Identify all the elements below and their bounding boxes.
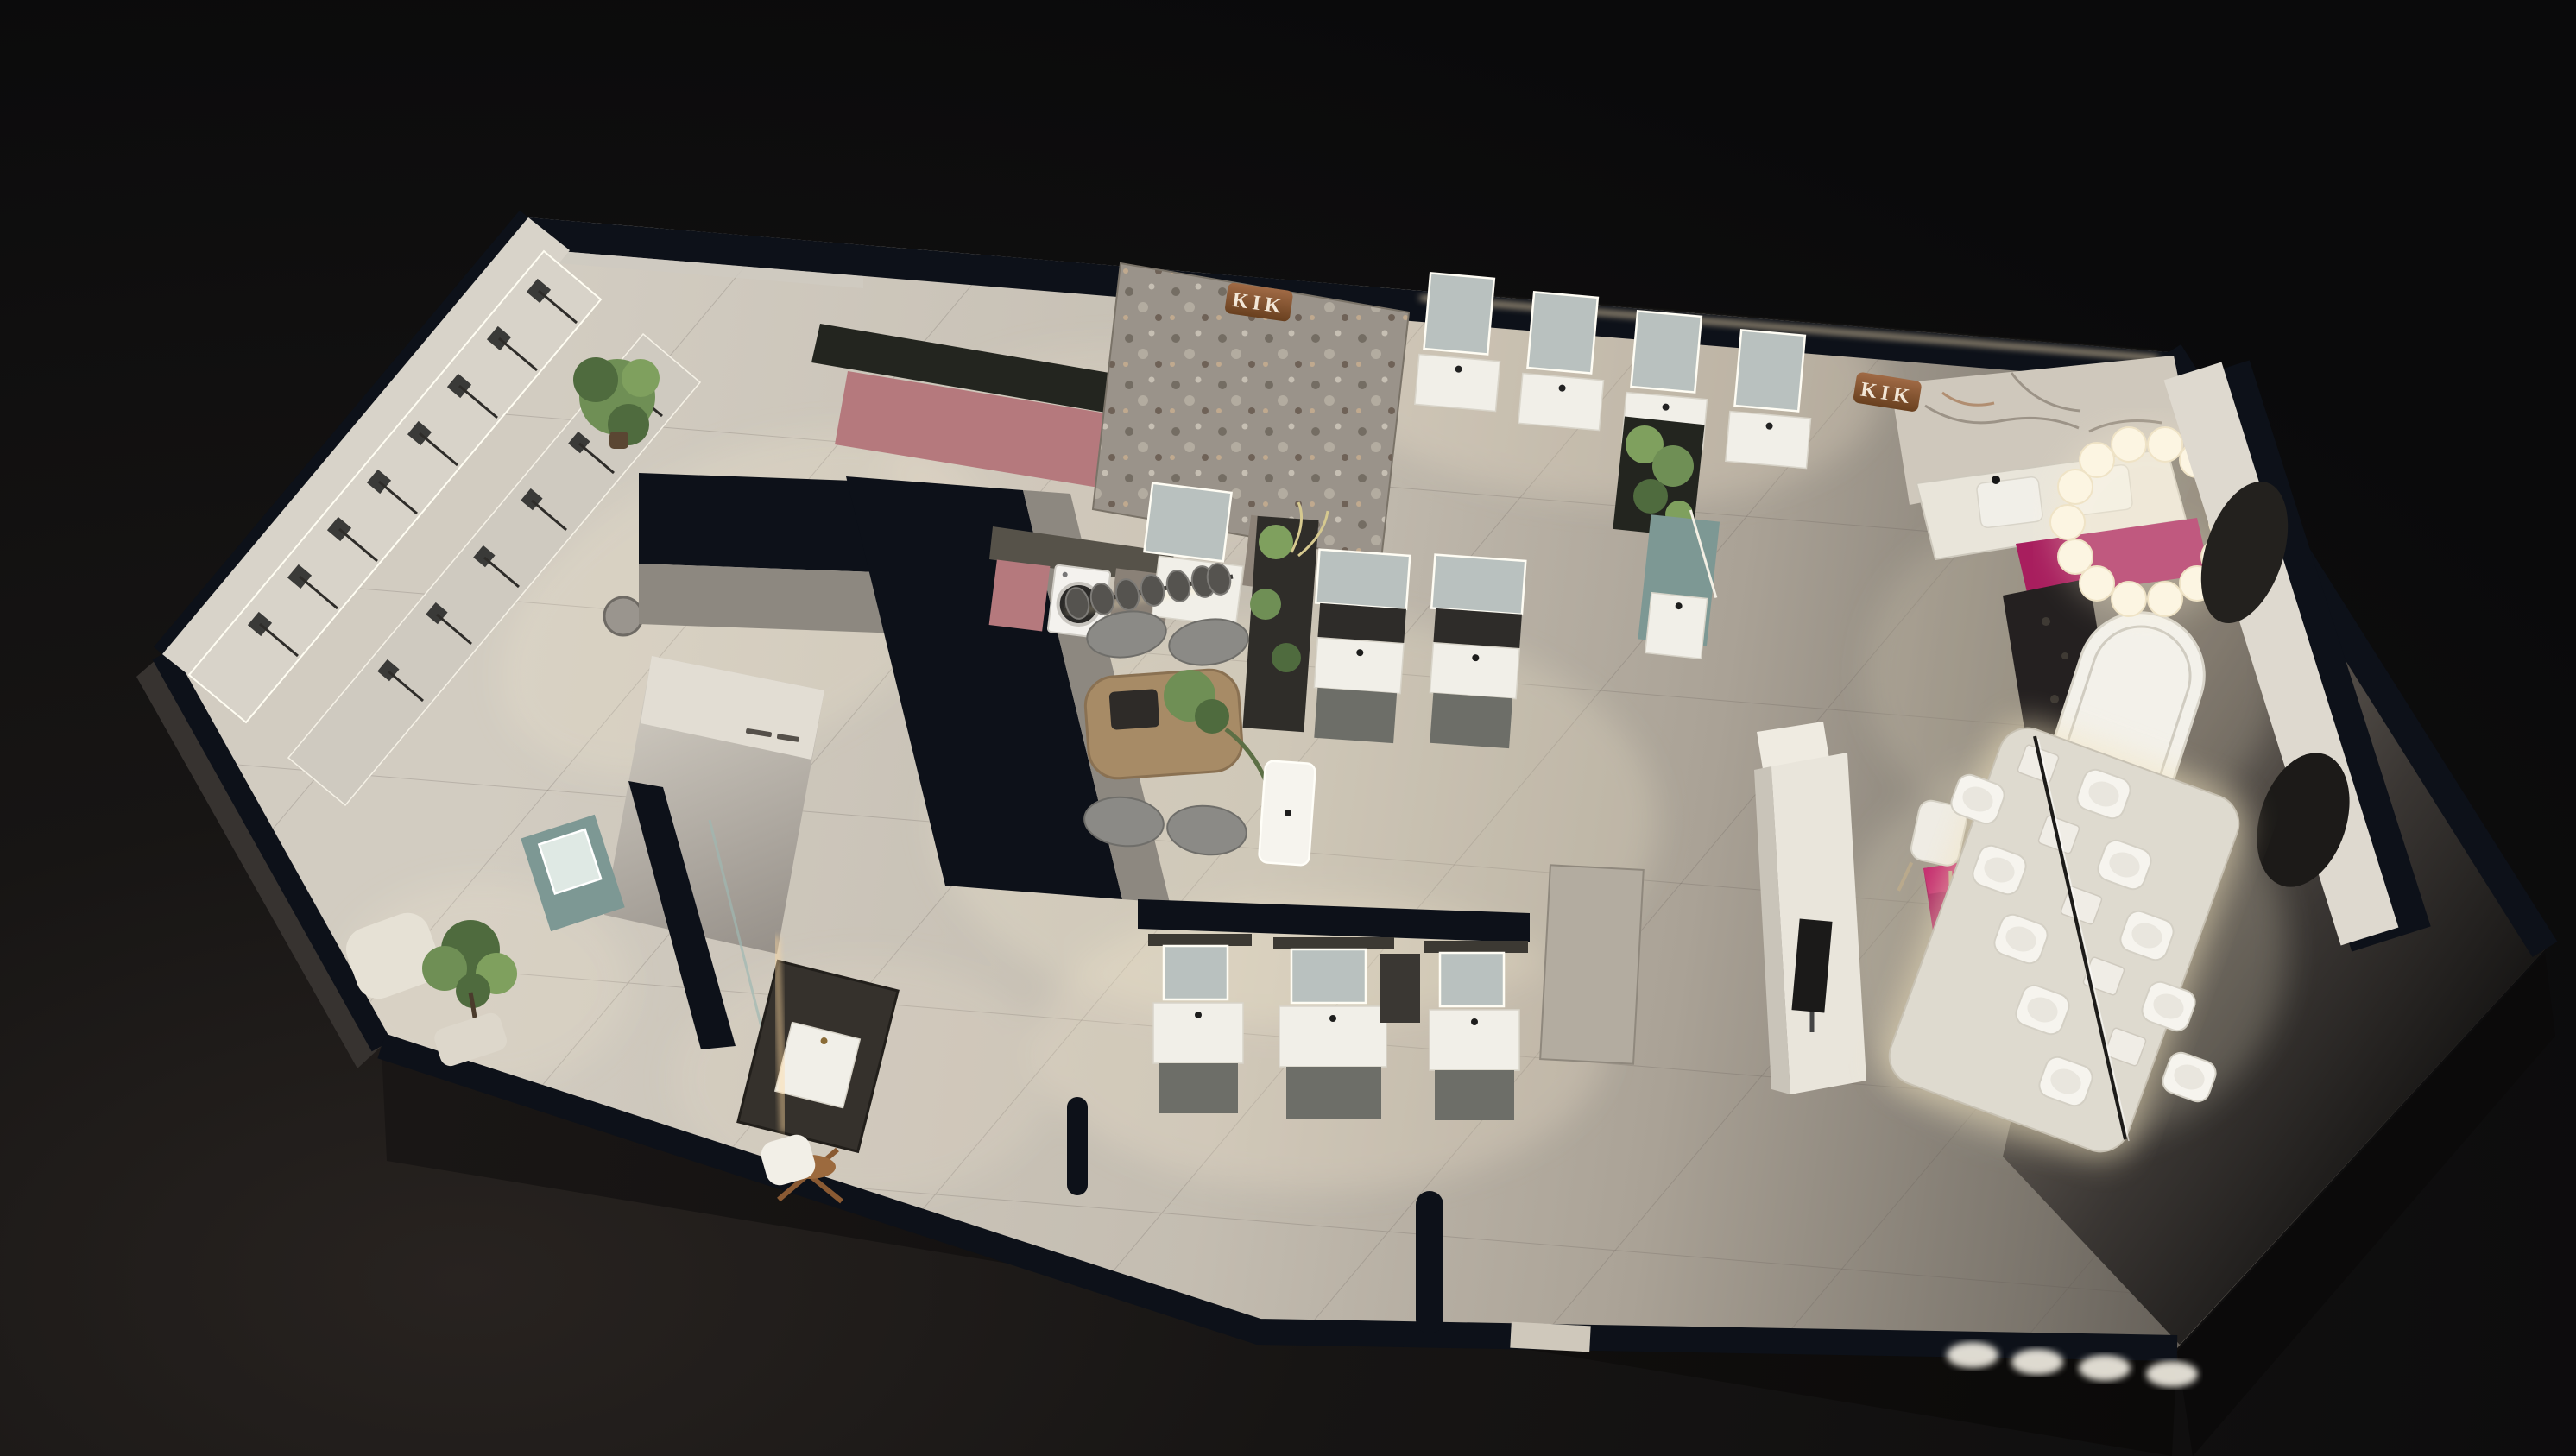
render-canvas: KIK <box>0 0 2576 1456</box>
basin <box>1976 476 2043 528</box>
faucet <box>1471 1018 1478 1025</box>
laundry-cabinet-pink <box>989 560 1051 632</box>
vanity-mirror <box>1164 946 1228 999</box>
chandelier-bulb <box>2050 505 2085 539</box>
shelf-plant <box>1272 643 1301 672</box>
reflection <box>1947 1342 1998 1368</box>
faucet <box>1195 1012 1202 1018</box>
chandelier-bulb <box>2148 427 2182 462</box>
vanity-mirror <box>1316 550 1410 609</box>
vanity-mirror <box>1527 292 1597 373</box>
vanity-unit-gray <box>1422 555 1525 749</box>
vanity-base <box>1159 1063 1238 1113</box>
vanity-mirror <box>1291 949 1366 1003</box>
vanity-unit-gray <box>1306 550 1410 744</box>
vanity-sink <box>1314 638 1404 694</box>
vanity-mirror <box>1431 555 1525 615</box>
vanity-base <box>1286 1067 1381 1119</box>
chandelier-bulb <box>2058 470 2093 504</box>
chandelier-bulb <box>2112 582 2146 616</box>
vanity-shelf <box>1317 603 1406 644</box>
vanity-mirror <box>1631 311 1701 392</box>
chandelier-bulb <box>2080 566 2114 601</box>
reflection <box>2146 1361 2198 1387</box>
vanity-mirror <box>1424 273 1493 354</box>
chandelier-bulb <box>2112 427 2146 462</box>
reflection <box>2079 1355 2131 1381</box>
dome-pendant-lamp <box>604 597 642 635</box>
chandelier-bulb <box>2148 582 2182 616</box>
reflection <box>2011 1349 2063 1375</box>
faucet <box>1329 1015 1336 1022</box>
wall-stub-rounded <box>1416 1191 1443 1333</box>
vanity-sink <box>1415 355 1500 412</box>
shelf-plant <box>1250 589 1281 620</box>
faucet <box>1992 476 2000 484</box>
table-plant <box>1195 699 1229 734</box>
vanity-mirror <box>1440 953 1504 1006</box>
plant-pot <box>609 432 628 449</box>
vanity-sink <box>1726 412 1811 469</box>
vanity-sink <box>1518 374 1604 431</box>
shelf-plant <box>1259 525 1293 559</box>
bottom-wall-doorway <box>1510 1322 1590 1352</box>
vanity-shelf <box>1433 608 1522 649</box>
vanity-base <box>1430 693 1512 748</box>
open-shelf <box>1380 954 1420 1023</box>
table-tray <box>1109 689 1160 730</box>
vanity-base <box>1314 688 1397 743</box>
tall-cabinet <box>1540 865 1644 1063</box>
vanity-mirror <box>1144 483 1231 562</box>
wall-stub-rounded <box>1067 1097 1088 1195</box>
faucet <box>1285 810 1291 816</box>
vanity-mirror <box>1734 330 1804 411</box>
vanity-base <box>1435 1070 1514 1120</box>
vanity-sink <box>1645 593 1708 659</box>
vanity-sink <box>1430 643 1519 699</box>
